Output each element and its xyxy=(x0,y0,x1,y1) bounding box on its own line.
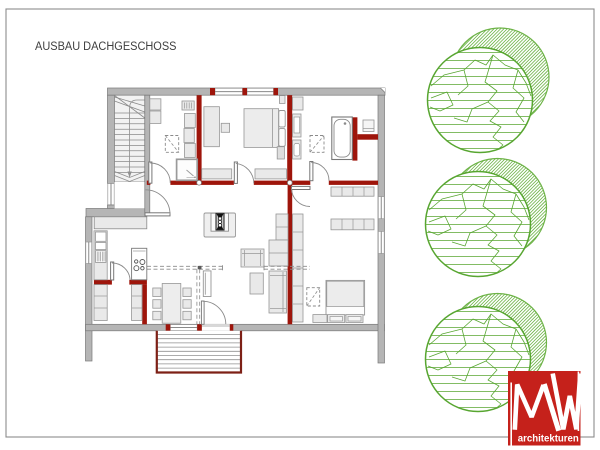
svg-text:architekturen: architekturen xyxy=(518,433,579,444)
svg-text:AUSBAU DACHGESCHOSS: AUSBAU DACHGESCHOSS xyxy=(35,39,177,53)
